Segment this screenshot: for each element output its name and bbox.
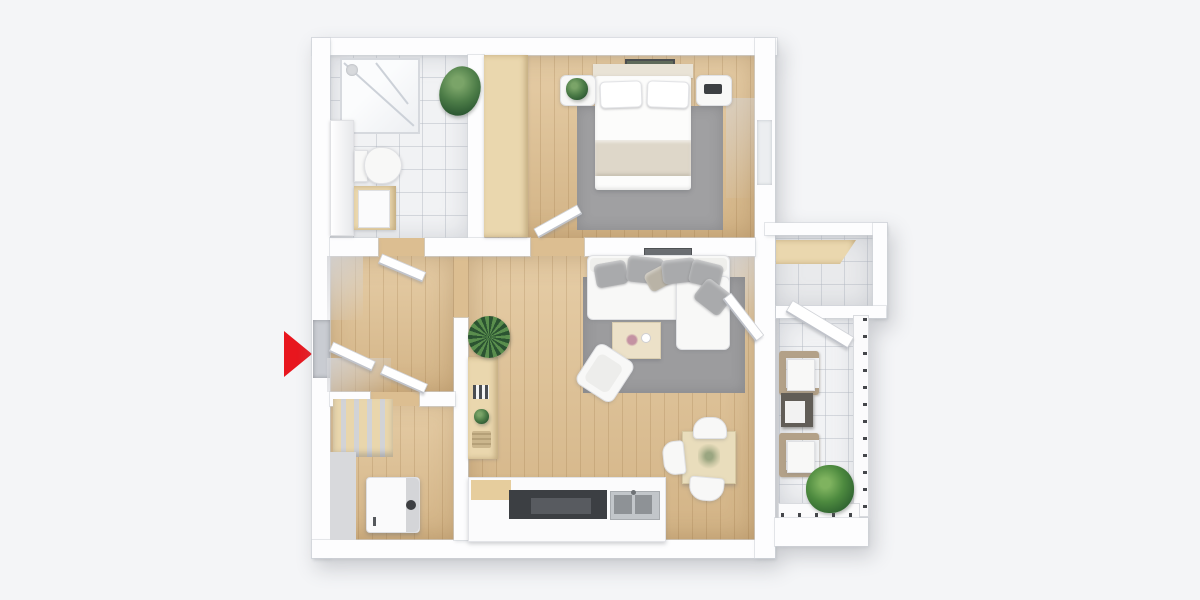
- living-tall-plant: [468, 316, 510, 358]
- bookshelf-basket: [472, 431, 491, 448]
- bookshelf: [468, 357, 498, 459]
- apartment-plan: [0, 0, 1200, 600]
- hallway-wallface-top: [327, 256, 363, 320]
- bedroom-wallface-corner: [726, 98, 755, 198]
- wall-hallway-utility-b: [420, 392, 455, 406]
- dining-table-print: [698, 444, 720, 471]
- coffee-table-cup: [641, 333, 651, 343]
- nightstand-plant: [566, 78, 588, 100]
- balcony-railing-right: [854, 316, 868, 516]
- cooktop: [509, 490, 607, 519]
- hallway-living-opening: [454, 256, 468, 318]
- outer-wall-top: [312, 38, 777, 55]
- wicker-chair-1-cushion: [787, 359, 815, 391]
- armchair-cushion: [583, 352, 624, 394]
- wall-hallway-living: [454, 318, 468, 540]
- bedroom-door-threshold: [530, 238, 585, 256]
- balcony-side-table: [781, 393, 813, 427]
- outer-wall-right: [755, 38, 775, 558]
- wall-middle-a: [330, 238, 378, 256]
- coffee-table-flowers: [625, 332, 639, 348]
- nightstand-radio: [704, 84, 722, 94]
- niche-wall-top: [765, 223, 887, 235]
- dining-chair-top: [693, 417, 727, 439]
- bed-pillow-right: [647, 80, 690, 108]
- outer-wall-bottom: [312, 540, 775, 558]
- washing-machine: [366, 477, 420, 533]
- slatted-shelf: [333, 399, 393, 457]
- counter-wood-board: [471, 480, 511, 500]
- double-bed: [593, 64, 693, 192]
- bookshelf-books: [473, 385, 489, 399]
- utility-wallface: [330, 452, 356, 540]
- bed-blanket: [595, 140, 691, 176]
- railing-posts-right: [863, 318, 867, 514]
- wall-middle-b: [425, 238, 530, 256]
- kitchen-counter: [468, 477, 666, 542]
- vanity-basin: [358, 190, 390, 228]
- sink-basin-left: [614, 495, 632, 514]
- sink-basin-right: [635, 495, 652, 514]
- wicker-chair-2-cushion: [787, 441, 815, 473]
- floorplan-canvas: [0, 0, 1200, 600]
- vanity-sink: [354, 186, 396, 230]
- toilet-bowl: [364, 147, 402, 184]
- bookshelf-plant: [474, 409, 489, 424]
- sink-faucet-icon: [631, 490, 636, 495]
- niche-wall-right: [873, 223, 887, 318]
- shower-glass-seam-2: [375, 62, 409, 104]
- kitchen-sink: [610, 491, 660, 520]
- bedroom-window: [757, 120, 772, 185]
- side-table-tray: [785, 401, 805, 423]
- washer-vent: [373, 517, 376, 526]
- railing-posts-bottom: [781, 513, 857, 517]
- washer-door-icon: [406, 500, 416, 510]
- wardrobe: [484, 55, 528, 237]
- balcony-plant: [806, 465, 854, 513]
- balcony-base-block: [775, 518, 868, 546]
- cooktop-panel: [531, 498, 591, 514]
- bed-pillow-left: [600, 80, 643, 108]
- shower-head-icon: [346, 64, 358, 76]
- bathroom-wall-cabinet: [330, 120, 354, 236]
- bathroom-door-threshold: [378, 238, 425, 256]
